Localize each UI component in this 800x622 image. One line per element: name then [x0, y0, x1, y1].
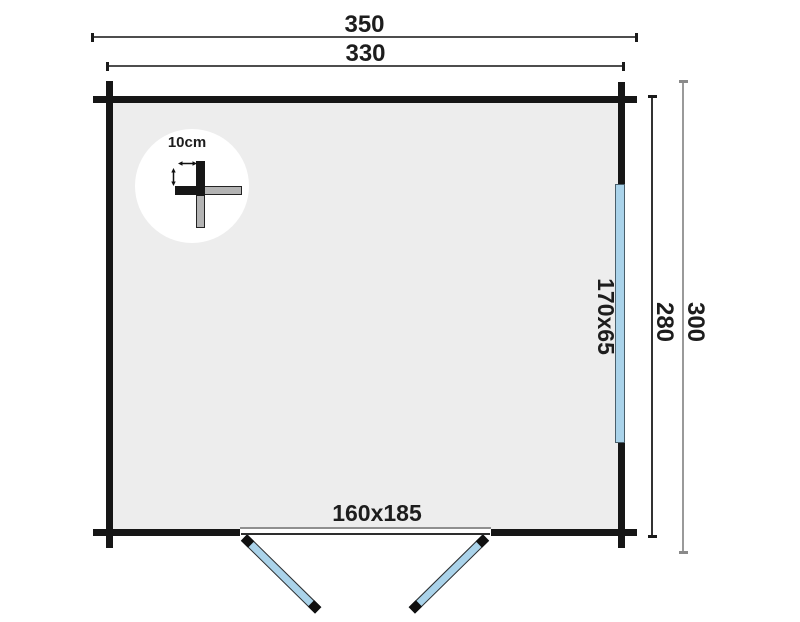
inner-depth-label: 280: [649, 257, 679, 387]
dimension-tick: [679, 80, 688, 83]
inner-width-label: 330: [107, 42, 624, 66]
overall-width-label: 350: [92, 13, 637, 37]
overall-depth-label: 300: [680, 257, 710, 387]
dimension-tick: [679, 551, 688, 554]
door-threshold-inner-line: [241, 533, 490, 535]
door-leaf-left: [241, 534, 321, 613]
overall-depth-text: 300: [683, 302, 707, 342]
detail-log-end-horizontal: [200, 186, 242, 195]
wall-bottom-left-segment: [93, 529, 240, 536]
door-leaf-end-tip: [308, 600, 321, 613]
window-size-text: 170x65: [594, 278, 617, 355]
wall-bottom-right-segment: [491, 529, 637, 536]
inner-depth-text: 280: [652, 302, 676, 342]
window-size-label: 170x65: [590, 251, 620, 381]
wall-left: [106, 81, 113, 548]
thickness-arrows-icon: [168, 156, 204, 192]
wall-thickness-label: 10cm: [147, 135, 227, 150]
door-leaf-right: [409, 534, 489, 613]
detail-log-end-vertical: [196, 191, 205, 228]
floor-plan-drawing: 350 330 280 300 170x65 160x185: [0, 0, 800, 622]
door-size-label: 160x185: [252, 502, 502, 525]
dimension-tick: [648, 535, 657, 538]
dimension-tick: [648, 95, 657, 98]
door-threshold-outer-line: [240, 527, 491, 529]
wall-right-upper-segment: [618, 82, 625, 184]
door-leaf-end-tip: [409, 600, 422, 613]
door-hinge-tip: [476, 534, 489, 547]
wall-top: [93, 96, 637, 103]
door-hinge-tip: [241, 534, 254, 547]
